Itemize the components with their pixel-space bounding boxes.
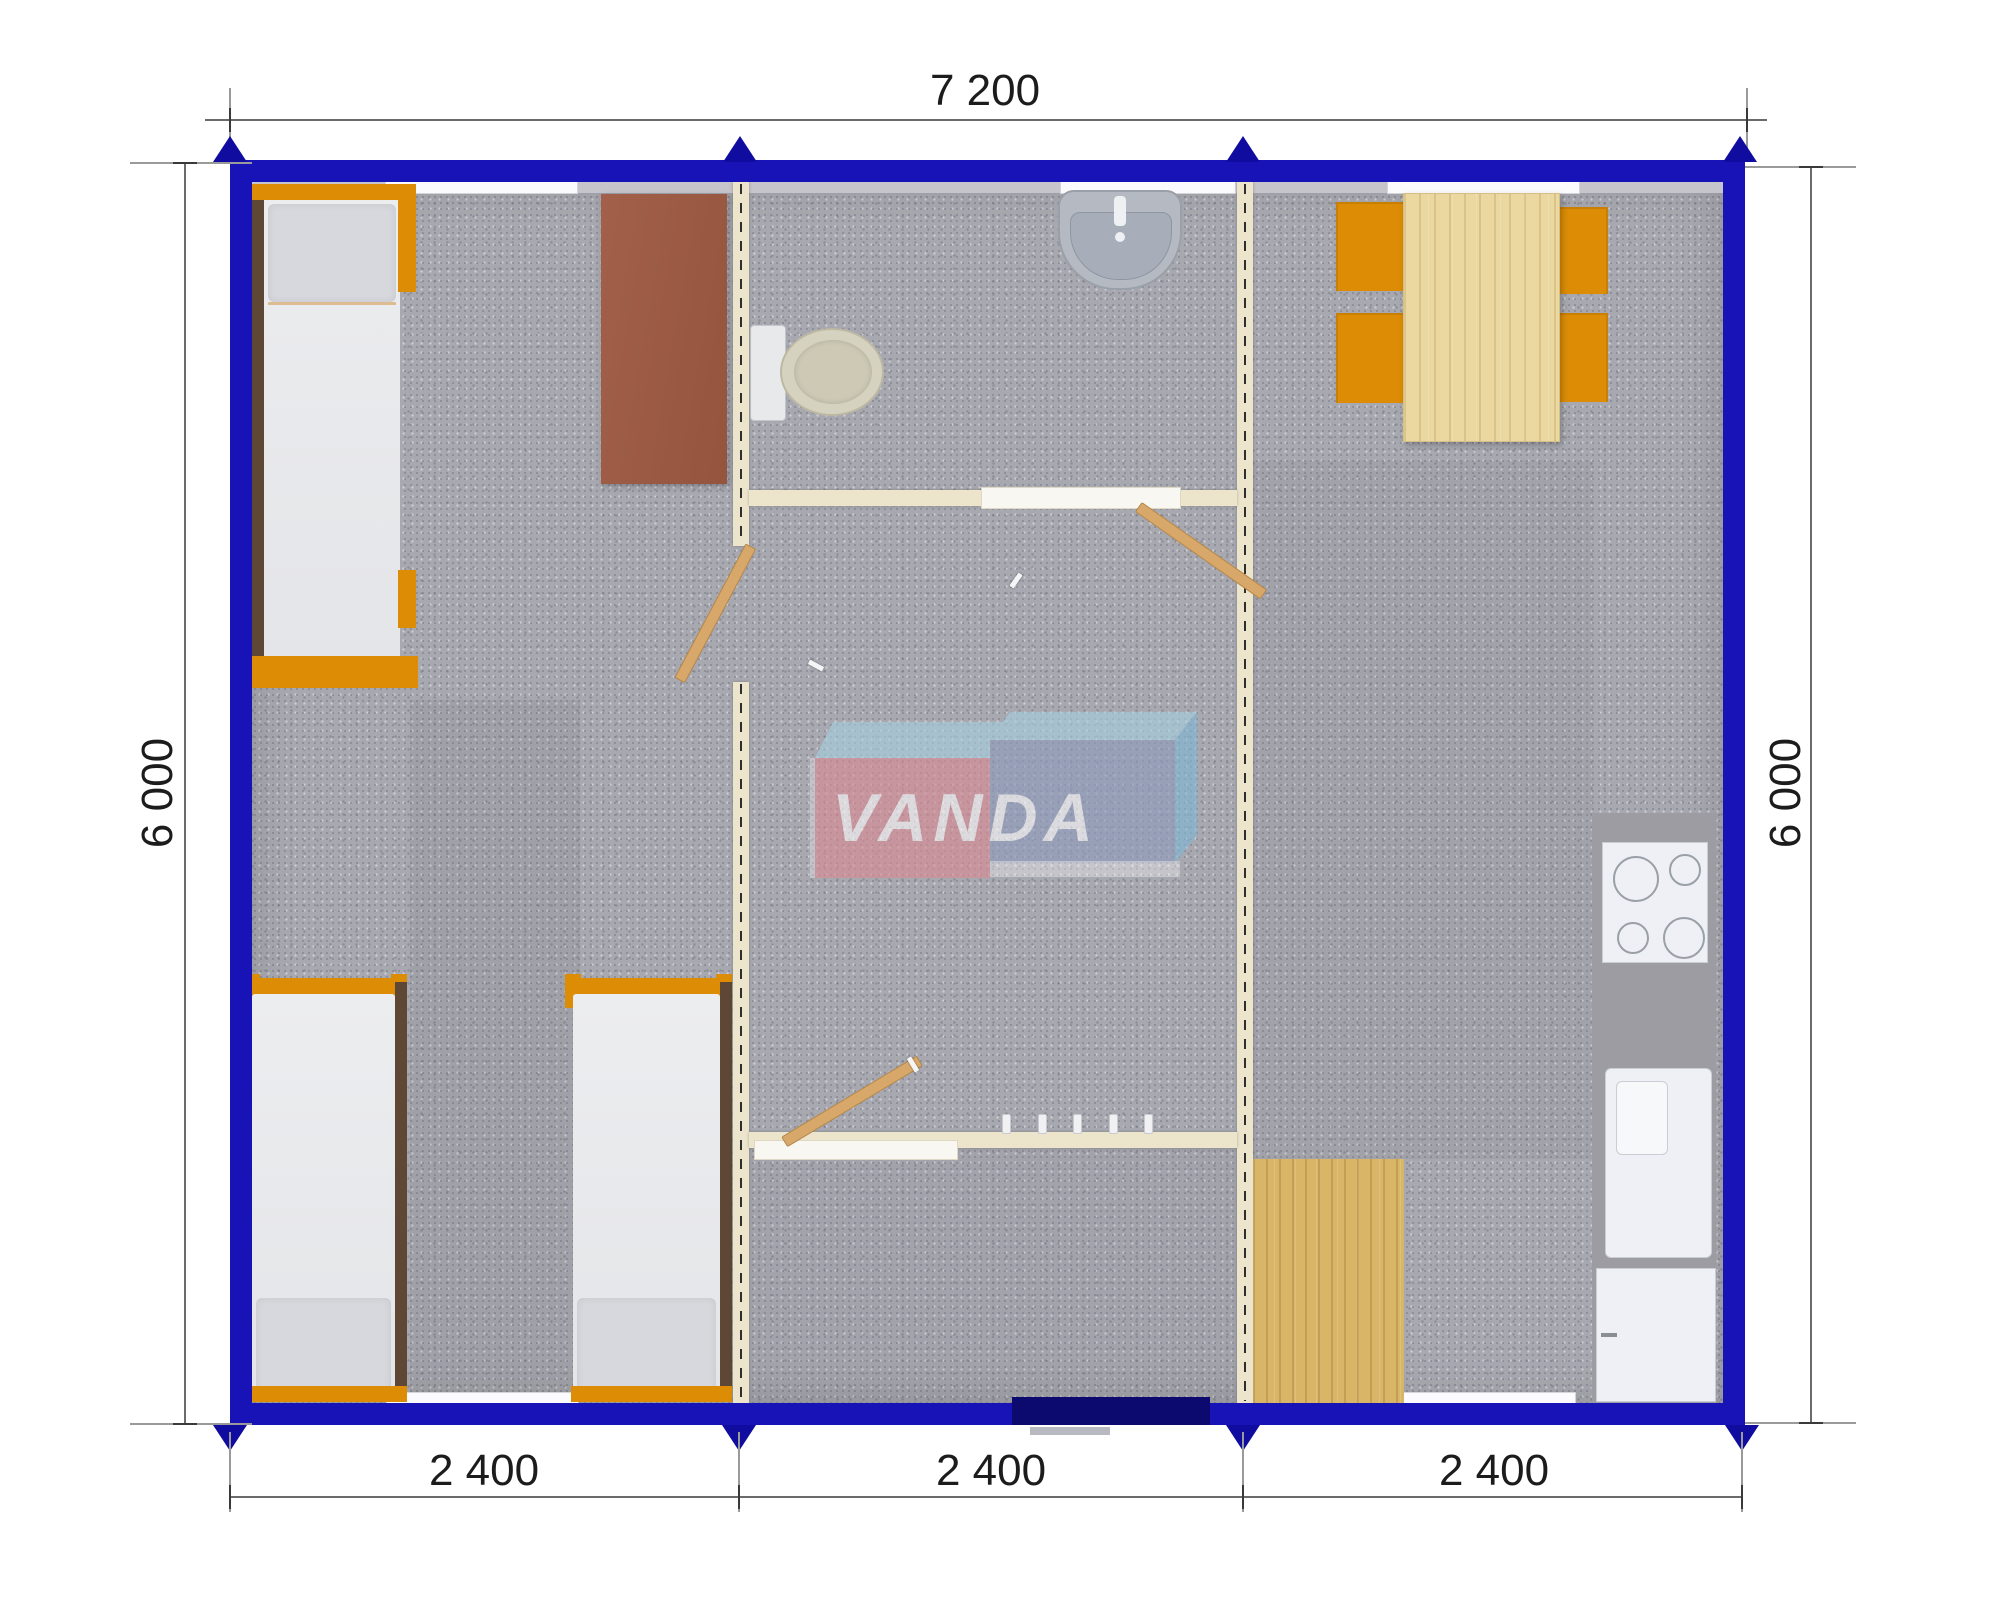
logo-left-top-face — [815, 722, 1003, 758]
exterior-wall-left — [230, 160, 252, 1425]
floor-plan: VANDA 7 200 6 000 6 000 2 400 2 400 2 40 — [0, 0, 2000, 1597]
burner-ring — [1669, 854, 1701, 886]
dimension-label-left: 6 000 — [135, 693, 181, 893]
dining-chair — [1556, 313, 1608, 402]
bed-side-rail — [720, 982, 732, 1402]
dimension-line-right — [1810, 167, 1812, 1423]
dimension-tick — [1746, 108, 1748, 132]
sink-basin — [1616, 1081, 1668, 1155]
coat-hook — [1038, 1114, 1047, 1134]
dimension-line-left — [184, 163, 186, 1425]
dimension-tick — [173, 162, 197, 164]
burner-ring — [1613, 856, 1659, 902]
burner-ring — [1663, 917, 1705, 959]
logo-watermark: VANDA — [810, 703, 1202, 883]
dimension-tick — [229, 1485, 231, 1509]
bed-post — [398, 184, 416, 292]
bed-post — [398, 570, 416, 628]
dimension-tick — [1799, 166, 1823, 168]
bed-pillow — [577, 1298, 716, 1395]
bed-foot-rail — [571, 1386, 732, 1402]
kitchen-cabinet — [1596, 1268, 1716, 1402]
exterior-wall-top — [230, 160, 1745, 182]
entrance-door — [1012, 1397, 1210, 1425]
coat-hook — [1073, 1114, 1082, 1134]
logo-highlight — [990, 861, 1180, 877]
bed-head-rail — [252, 184, 416, 200]
cabinet-handle — [1601, 1333, 1617, 1337]
coat-hook — [1109, 1114, 1118, 1134]
bed-pillow — [256, 1298, 391, 1395]
dimension-line-top — [205, 119, 1767, 121]
blanket-fold-line — [268, 302, 396, 305]
dining-chair — [1336, 313, 1404, 403]
carpet-tile-patch — [1253, 460, 1593, 1159]
exterior-wall-bottom — [230, 1403, 1745, 1425]
desk — [601, 194, 727, 484]
cooktop — [1602, 842, 1708, 963]
dimension-arrow — [1226, 136, 1260, 162]
dining-table — [1403, 193, 1560, 442]
dimension-tick — [738, 1485, 740, 1509]
toilet-seat — [794, 340, 872, 404]
dimension-line-bottom — [230, 1496, 1743, 1498]
dining-chair — [1556, 207, 1608, 294]
burner-ring — [1617, 922, 1649, 954]
dimension-arrow — [213, 136, 247, 162]
logo-text: VANDA — [832, 780, 1099, 856]
dimension-tick — [1799, 1422, 1823, 1424]
logo-right-top-face — [990, 712, 1197, 740]
floor-mat — [1253, 1159, 1404, 1403]
dining-chair — [1336, 202, 1404, 291]
dimension-label-bottom-3: 2 400 — [1394, 1448, 1594, 1494]
bathroom-sliding-door — [981, 487, 1181, 509]
coat-hook — [1002, 1114, 1011, 1134]
bed-pillow — [268, 204, 396, 302]
carpet-tile-patch — [749, 1148, 1237, 1403]
coat-hook — [1144, 1114, 1153, 1134]
bed-foot-rail — [252, 656, 418, 688]
module-wall-left-lower — [733, 682, 749, 1403]
module-wall-right — [1237, 182, 1253, 1403]
dimension-label-top: 7 200 — [885, 68, 1085, 114]
kitchen-sink-unit — [1605, 1068, 1712, 1258]
entrance-threshold — [1030, 1427, 1110, 1435]
dimension-tick — [1741, 1485, 1743, 1509]
bed-side-rail — [395, 982, 407, 1402]
dimension-tick — [1242, 1485, 1244, 1509]
bed-head-rail — [571, 978, 732, 994]
carpet-tile-patch — [410, 700, 580, 1403]
faucet-knob — [1115, 232, 1125, 242]
faucet-icon — [1114, 196, 1126, 226]
dimension-tick — [229, 108, 231, 132]
logo-highlight — [810, 758, 815, 878]
dimension-tick — [173, 1423, 197, 1425]
window — [1387, 180, 1580, 194]
dimension-arrow — [723, 136, 757, 162]
dimension-label-bottom-2: 2 400 — [891, 1448, 1091, 1494]
dimension-label-bottom-1: 2 400 — [384, 1448, 584, 1494]
bed-foot-rail — [250, 1386, 407, 1402]
dimension-arrow — [1723, 136, 1757, 162]
module-wall-left-upper — [733, 182, 749, 546]
dimension-label-right: 6 000 — [1763, 693, 1809, 893]
exterior-wall-right — [1723, 160, 1745, 1425]
bed-head-rail — [250, 978, 407, 994]
